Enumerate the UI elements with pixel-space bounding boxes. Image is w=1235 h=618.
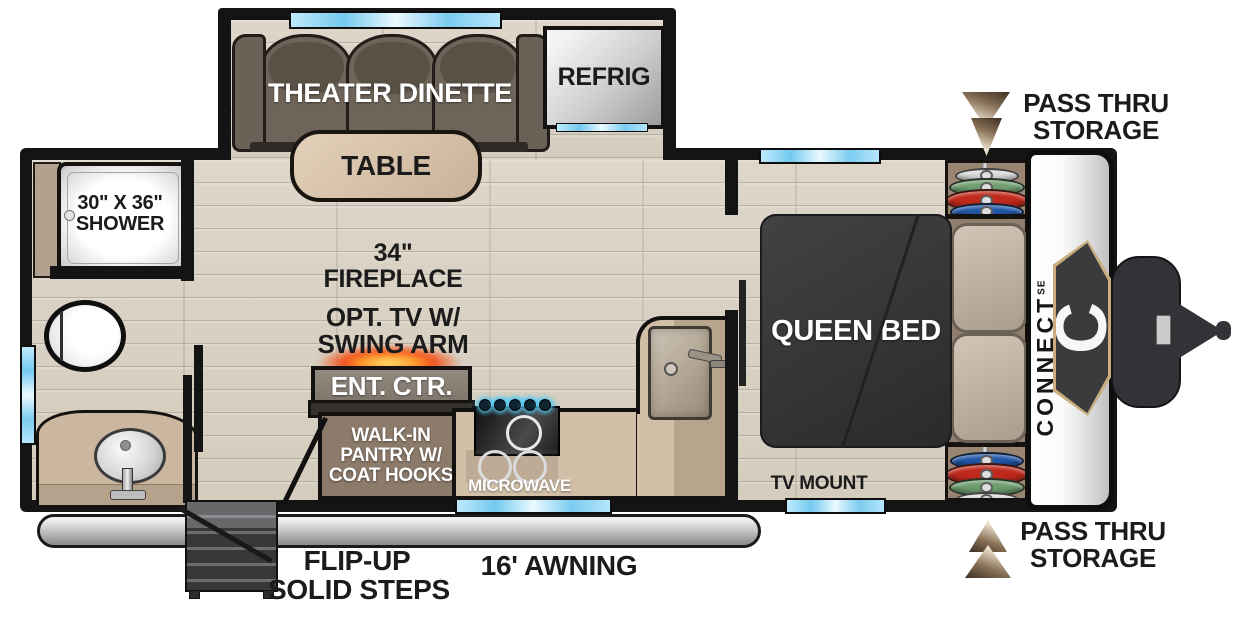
- walk-in-pantry: WALK-IN PANTRY W/ COAT HOOKS: [318, 412, 464, 500]
- bedroom-pocket-door: [739, 280, 746, 386]
- wardrobe-bottom: [945, 444, 1028, 501]
- flip-up-steps-label: FLIP-UP SOLID STEPS: [268, 546, 446, 605]
- steps-foot: [189, 590, 200, 599]
- queen-bed: QUEEN BED: [760, 214, 952, 448]
- bath-door-jamb-left: [183, 375, 192, 503]
- bedroom-wall-bottom: [725, 310, 738, 500]
- theater-dinette-label: THEATER DINETTE: [240, 79, 540, 107]
- stove-knob: [479, 399, 491, 411]
- hanger-hook-icon: [980, 494, 993, 501]
- entry-steps: [185, 500, 278, 592]
- stove-knob: [494, 399, 506, 411]
- stove-knob: [539, 399, 551, 411]
- shower: 30" X 36" SHOWER: [57, 162, 189, 274]
- dinette-table: TABLE: [290, 130, 482, 202]
- bedroom-bottom-window: [785, 498, 886, 514]
- awning-label: 16' AWNING: [468, 551, 650, 580]
- stove-knob: [509, 399, 521, 411]
- refrig-vent: [556, 123, 648, 132]
- steps-platform: [187, 502, 276, 528]
- bathroom-left-window: [20, 345, 36, 445]
- refrigerator: REFRIG: [543, 26, 665, 129]
- opt-tv-label: OPT. TV W/ SWING ARM: [305, 304, 481, 359]
- awning: [37, 514, 761, 548]
- hanger-hook-icon: [980, 206, 993, 217]
- bedroom-top-window: [759, 148, 881, 164]
- wardrobe-top: [945, 160, 1028, 217]
- brand-name: CONNECT: [1032, 295, 1058, 437]
- bed-pillow: [951, 223, 1027, 333]
- fireplace-label: 34" FIREPLACE: [310, 240, 476, 293]
- bath-sink-drain: [120, 440, 131, 451]
- refrig-label: REFRIG: [558, 64, 651, 90]
- ent-ctr-label: ENT. CTR.: [331, 373, 453, 400]
- tv-mount-label: TV MOUNT: [760, 474, 878, 494]
- counter-seam-patch: [637, 414, 647, 496]
- pass-thru-storage-bottom-label: PASS THRU STORAGE: [1007, 518, 1179, 573]
- kitchen-sink-drain: [664, 362, 678, 376]
- hitch-ball-tip: [1216, 321, 1231, 340]
- brand-sub: SE: [1036, 279, 1047, 294]
- brand-badge-inner: C: [1056, 243, 1108, 413]
- brand-badge: C: [1053, 240, 1111, 416]
- bath-door-jamb-right: [194, 345, 203, 452]
- bedroom-wall-top-stub: [725, 160, 738, 215]
- brand-logo: CONNECTSE: [1032, 208, 1060, 508]
- stove-burner-ring: [506, 415, 542, 451]
- floorplan: 30" X 36" SHOWER THEATER DINETTE TABLE R…: [0, 0, 1235, 618]
- stove: [474, 406, 560, 456]
- stove-knob: [524, 399, 536, 411]
- hitch-coupler: [1156, 315, 1171, 345]
- pantry-label: WALK-IN PANTRY W/ COAT HOOKS: [322, 426, 460, 486]
- queen-bed-label: QUEEN BED: [771, 316, 941, 346]
- microwave-label: MICROWAVE: [462, 477, 577, 495]
- toilet: [44, 300, 126, 372]
- bath-faucet-base: [110, 490, 146, 500]
- kitchen-sink: [648, 326, 712, 420]
- toilet-seat-line: [60, 311, 63, 361]
- dinette-window: [289, 11, 502, 29]
- pass-thru-storage-top-label: PASS THRU STORAGE: [1010, 90, 1182, 145]
- hanger-hook-icon: [980, 482, 993, 493]
- shower-label: 30" X 36" SHOWER: [61, 193, 179, 235]
- shower-wall-bottom: [50, 266, 194, 279]
- shower-wall-right: [181, 160, 194, 281]
- kitchen-bottom-window: [455, 498, 612, 514]
- table-label: TABLE: [341, 151, 431, 180]
- bed-pillow: [951, 333, 1027, 443]
